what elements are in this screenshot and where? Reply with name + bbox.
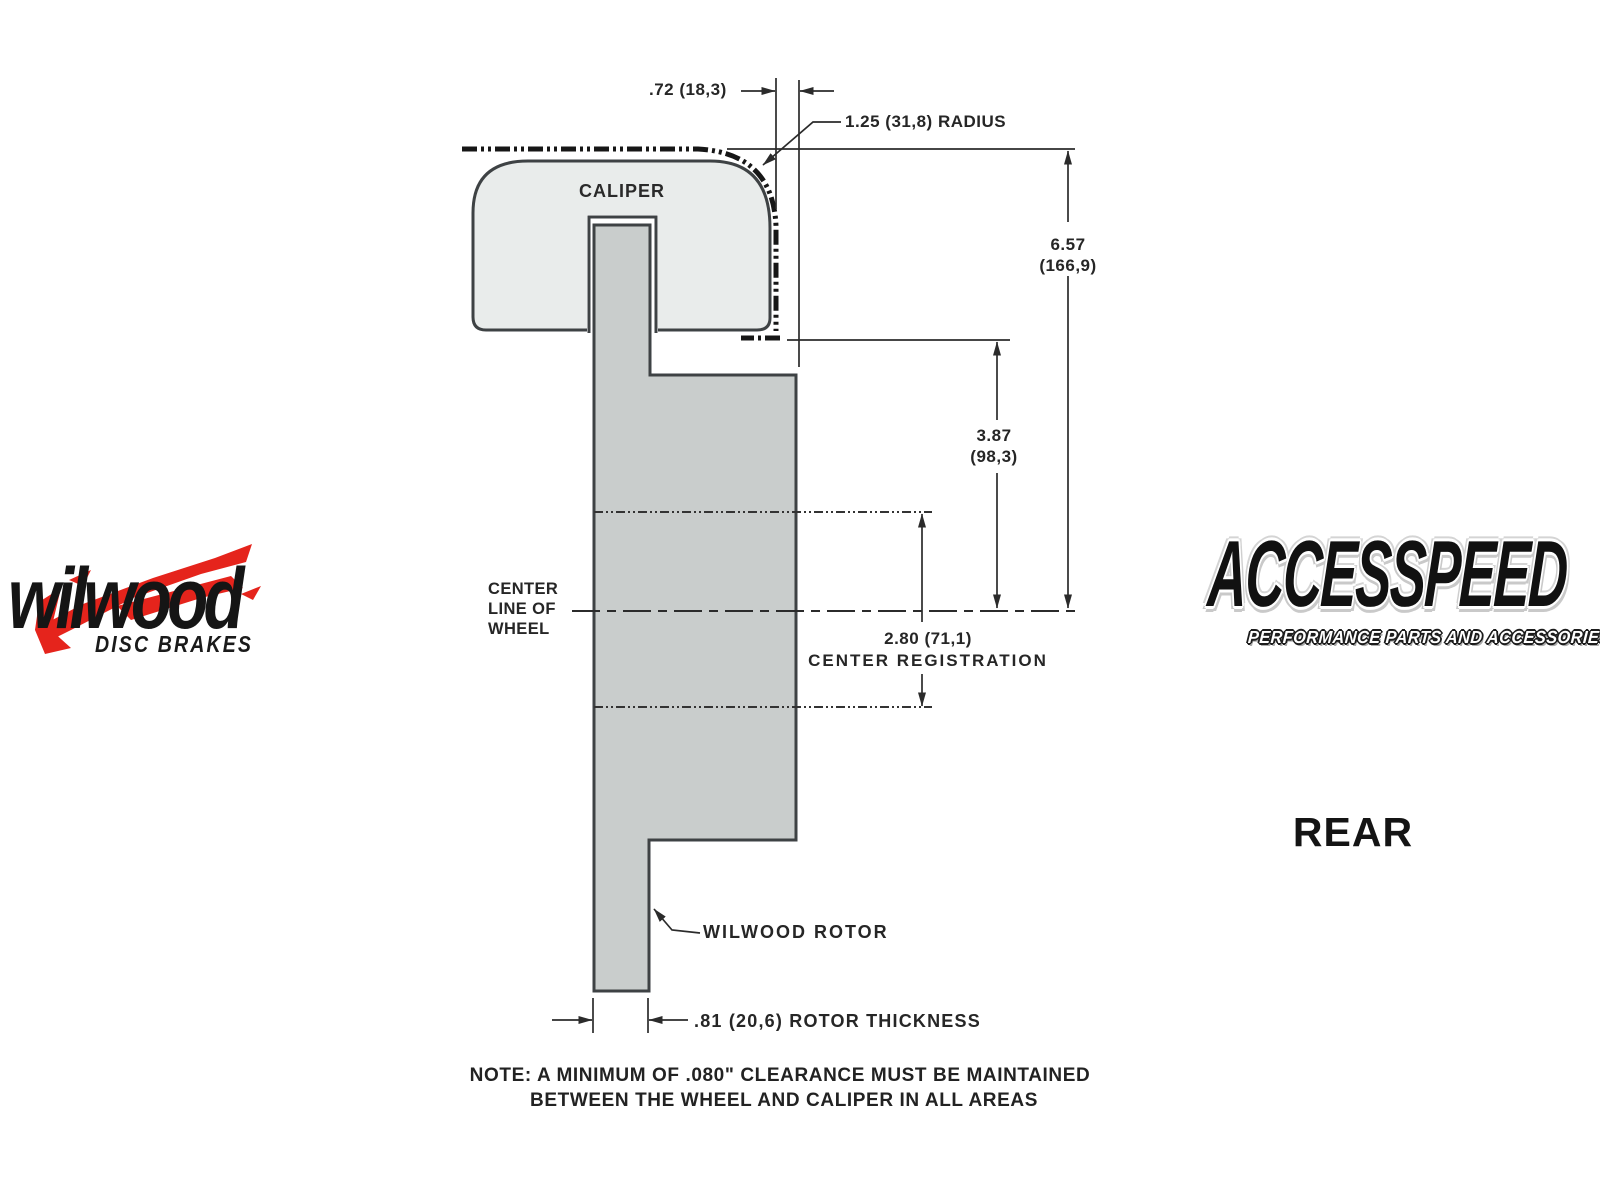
note-line-2: BETWEEN THE WHEEL AND CALIPER IN ALL ARE… (530, 1091, 1038, 1110)
radius-leader-line (763, 122, 841, 165)
view-label-rear: REAR (1293, 812, 1413, 853)
centerline-label-3: WHEEL (488, 621, 550, 638)
radius-label: 1.25 (31,8) RADIUS (845, 113, 1006, 130)
center-reg-value: 2.80 (71,1) (884, 630, 972, 647)
rotor-leader-line (654, 909, 700, 933)
mount-height-value: 3.87 (976, 427, 1011, 444)
top-width-dim-label: .72 (18,3) (649, 81, 727, 98)
rotor-thickness-label: .81 (20,6) ROTOR THICKNESS (694, 1012, 981, 1030)
accesspeed-wordmark: ACCESSPEED (1206, 527, 1568, 621)
overall-height-mm: (166,9) (1039, 257, 1096, 274)
note-line-1: NOTE: A MINIMUM OF .080" CLEARANCE MUST … (470, 1066, 1091, 1085)
centerline-label-2: LINE OF (488, 601, 556, 618)
overall-height-value: 6.57 (1050, 236, 1085, 253)
wilwood-tagline: DISC BRAKES (95, 633, 253, 656)
rotor-leader-label: WILWOOD ROTOR (703, 923, 889, 941)
accesspeed-logo: ACCESSPEED PERFORMANCE PARTS AND ACCESSO… (1190, 520, 1600, 660)
mount-height-mm: (98,3) (970, 448, 1017, 465)
wilwood-wordmark: wilwood (8, 556, 240, 642)
caliper-label: CALIPER (579, 182, 665, 200)
wilwood-logo: wilwood DISC BRAKES (0, 530, 330, 665)
brake-dimension-diagram: .72 (18,3) 1.25 (31,8) RADIUS CALIPER 6.… (0, 0, 1600, 1200)
accesspeed-tagline: PERFORMANCE PARTS AND ACCESSORIES (1247, 629, 1600, 647)
centerline-label-1: CENTER (488, 581, 558, 598)
center-reg-label: CENTER REGISTRATION (808, 652, 1048, 669)
